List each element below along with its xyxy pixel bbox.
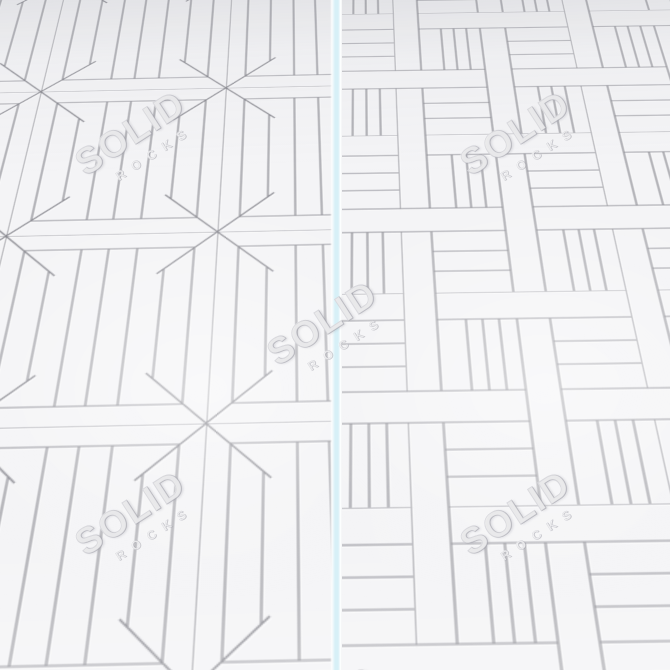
left-pattern-fill	[0, 0, 332, 670]
left-parquet-pattern-svg	[0, 0, 332, 670]
left-floor-plane	[0, 0, 332, 670]
left-parquet-panel	[0, 0, 332, 670]
texture-preview: SOLIDROCKSSOLIDROCKSSOLIDROCKSSOLIDROCKS…	[0, 0, 670, 670]
right-parquet-panel	[342, 0, 670, 670]
right-pattern-fill	[342, 0, 670, 670]
right-floor-plane	[342, 0, 670, 670]
panel-divider	[330, 0, 342, 670]
right-parquet-pattern-svg	[342, 0, 670, 670]
